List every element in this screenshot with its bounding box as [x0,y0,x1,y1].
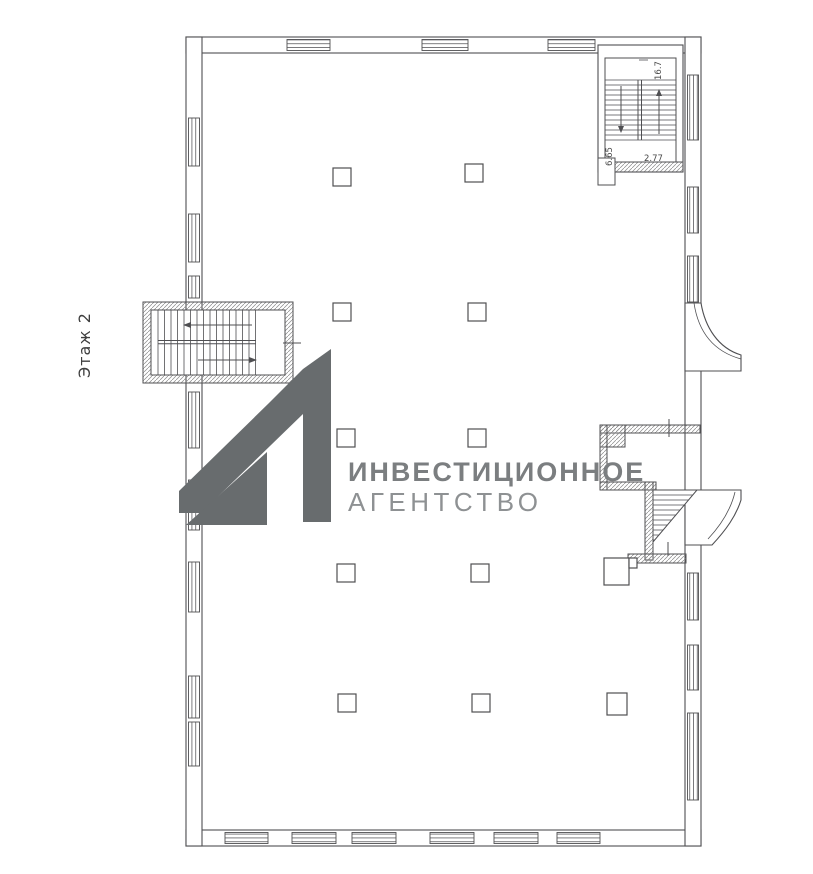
window [292,833,336,844]
window [287,40,330,51]
column [333,168,351,186]
column [465,164,483,182]
column [333,303,351,321]
column [468,429,486,447]
columns [333,164,627,715]
column [468,303,486,321]
window [189,722,200,766]
window [688,713,699,800]
floor-plan-page: 16.7 6.65 2.77 ИНВЕСТИЦИОННОЕ АГЕНТСТВО [0,0,813,874]
column [472,694,490,712]
column [337,564,355,582]
window [352,833,396,844]
window [688,187,699,233]
window [189,392,200,448]
stair-mark-label: 16.7 [654,61,664,80]
window [189,276,200,298]
column [471,564,489,582]
window [225,833,268,844]
window [688,573,699,620]
agency-name-line1: ИНВЕСТИЦИОННОЕ [348,457,645,487]
window [189,676,200,718]
window [557,833,600,844]
window [688,75,699,140]
window [422,40,468,51]
floor-label: Этаж 2 [75,312,94,378]
window [688,256,699,302]
window [548,40,595,51]
window [430,833,474,844]
window [189,562,200,612]
floor-plan-scan: 16.7 6.65 2.77 ИНВЕСТИЦИОННОЕ АГЕНТСТВО [0,0,813,874]
l-shaped-column [604,558,637,585]
stair-depth-label: 6.65 [605,147,615,166]
stairwell-left [143,302,301,383]
window [189,118,200,166]
curved-wall-lower [685,490,741,545]
curved-wall-upper [685,303,741,371]
right-wall-features [600,303,741,585]
column [607,693,627,715]
stair-width-label: 2.77 [644,154,663,164]
agency-name-line2: АГЕНТСТВО [348,487,542,517]
window [189,214,200,262]
stairwell-top-right: 16.7 6.65 2.77 [598,45,683,185]
window [688,645,699,690]
winder-left-wall [645,482,653,560]
column [337,429,355,447]
window [494,833,538,844]
column [338,694,356,712]
